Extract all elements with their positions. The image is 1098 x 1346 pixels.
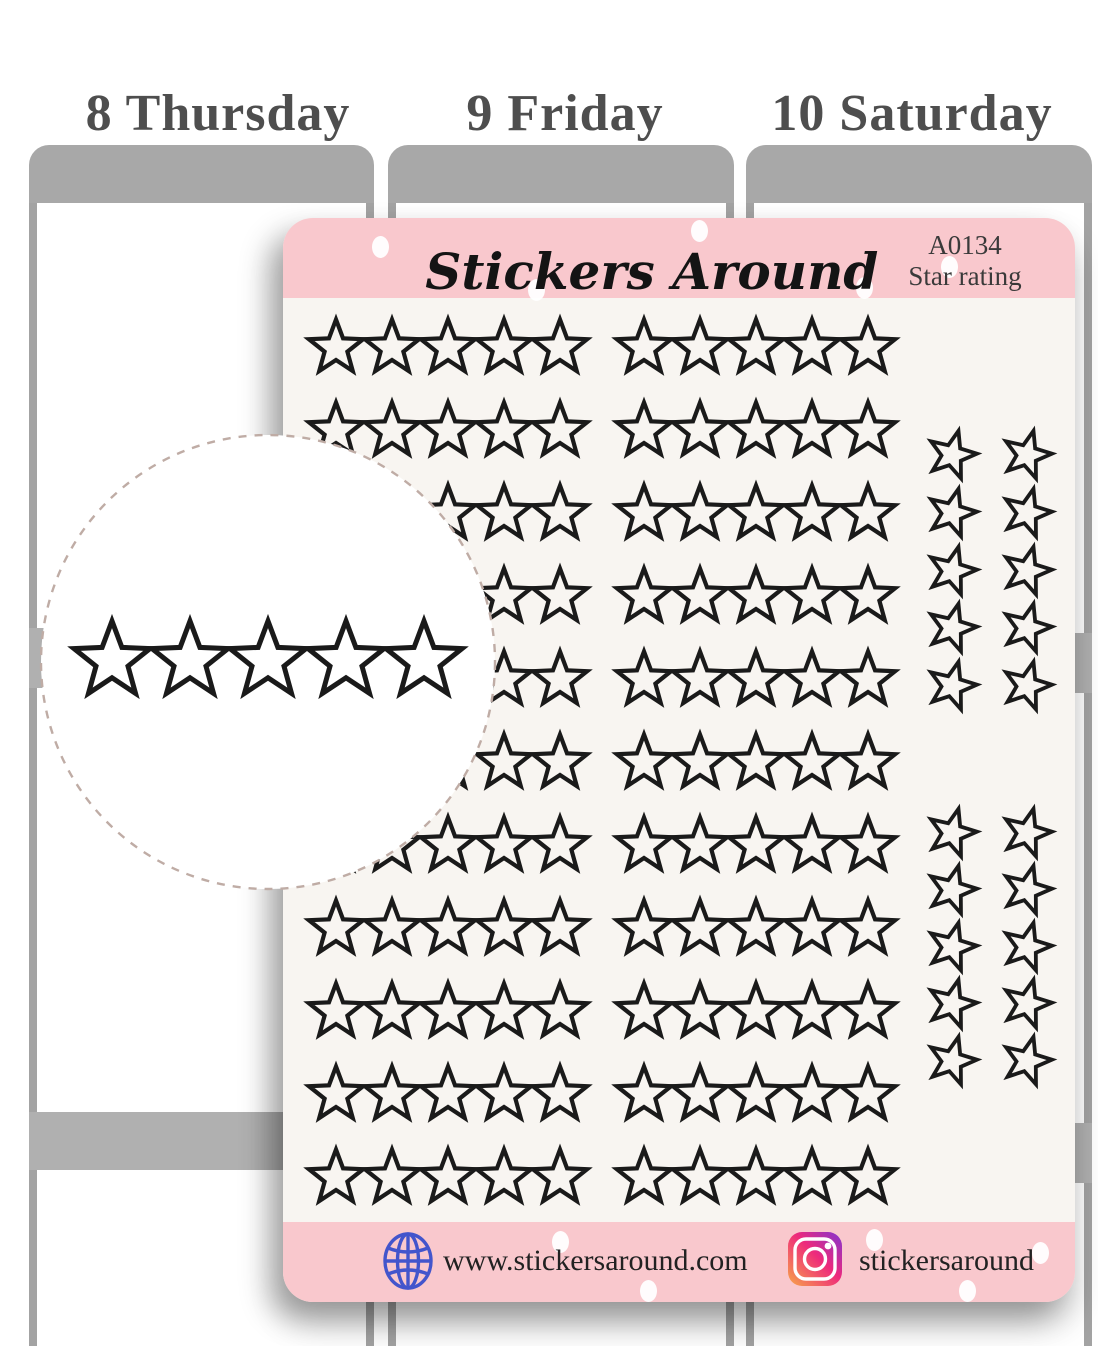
sheet-footer: www.stickersaround.com stickersaround	[283, 1232, 1075, 1290]
day-label-saturday: 10 Saturday	[771, 84, 1052, 143]
planner-column-header	[388, 145, 734, 203]
instagram-handle: stickersaround	[859, 1244, 1034, 1278]
brand-title: Stickers Around	[425, 242, 878, 301]
sku-block: A0134 Star rating	[895, 230, 1035, 292]
globe-icon	[381, 1232, 435, 1290]
day-label-friday: 9 Friday	[466, 84, 663, 143]
polka-dot	[372, 236, 389, 258]
website-url: www.stickersaround.com	[443, 1244, 748, 1278]
instagram-icon	[788, 1232, 842, 1286]
planner-column-header	[29, 145, 374, 203]
planner-column-header	[746, 145, 1092, 203]
sticker-sheet: Stickers Around A0134 Star rating www.st…	[283, 218, 1075, 1302]
day-label-thursday: 8 Thursday	[86, 84, 351, 143]
sku-code: A0134	[895, 230, 1035, 261]
product-image: 8 Thursday 9 Friday 10 Saturday Stickers…	[0, 0, 1098, 1346]
product-name: Star rating	[895, 261, 1035, 292]
polka-dot	[691, 220, 708, 242]
